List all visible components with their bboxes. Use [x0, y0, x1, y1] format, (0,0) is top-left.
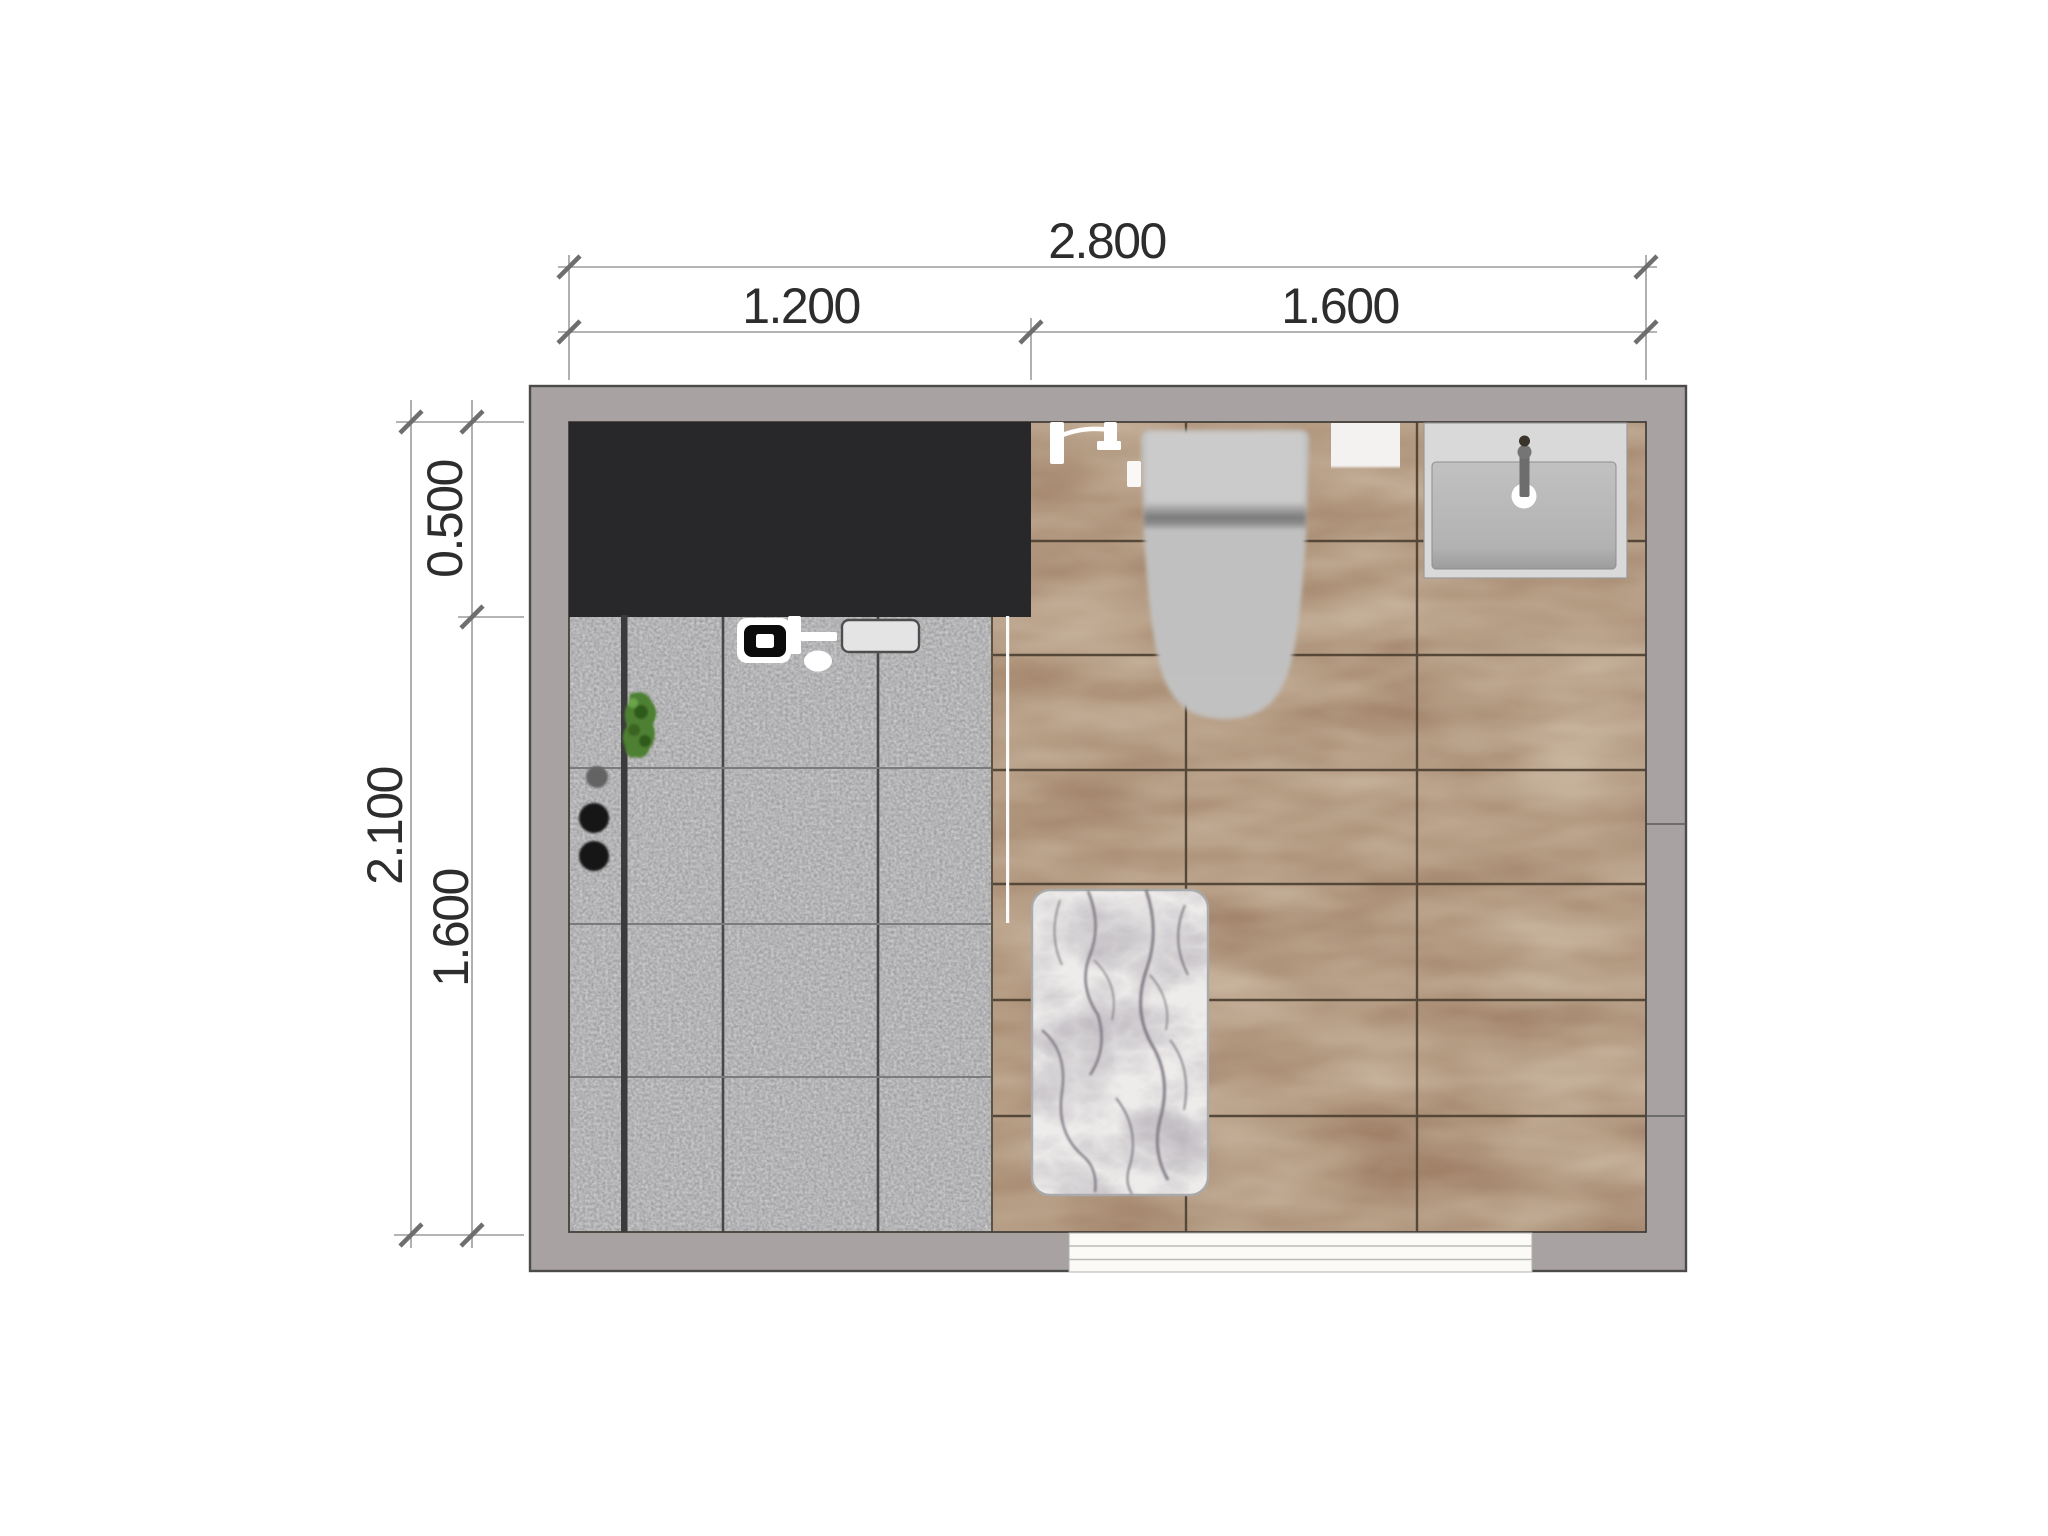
- svg-text:1.600: 1.600: [423, 869, 479, 987]
- svg-text:2.100: 2.100: [357, 767, 413, 885]
- svg-text:1.200: 1.200: [742, 278, 860, 334]
- svg-text:0.500: 0.500: [417, 460, 473, 578]
- svg-text:1.600: 1.600: [1281, 278, 1399, 334]
- svg-text:2.800: 2.800: [1048, 213, 1166, 269]
